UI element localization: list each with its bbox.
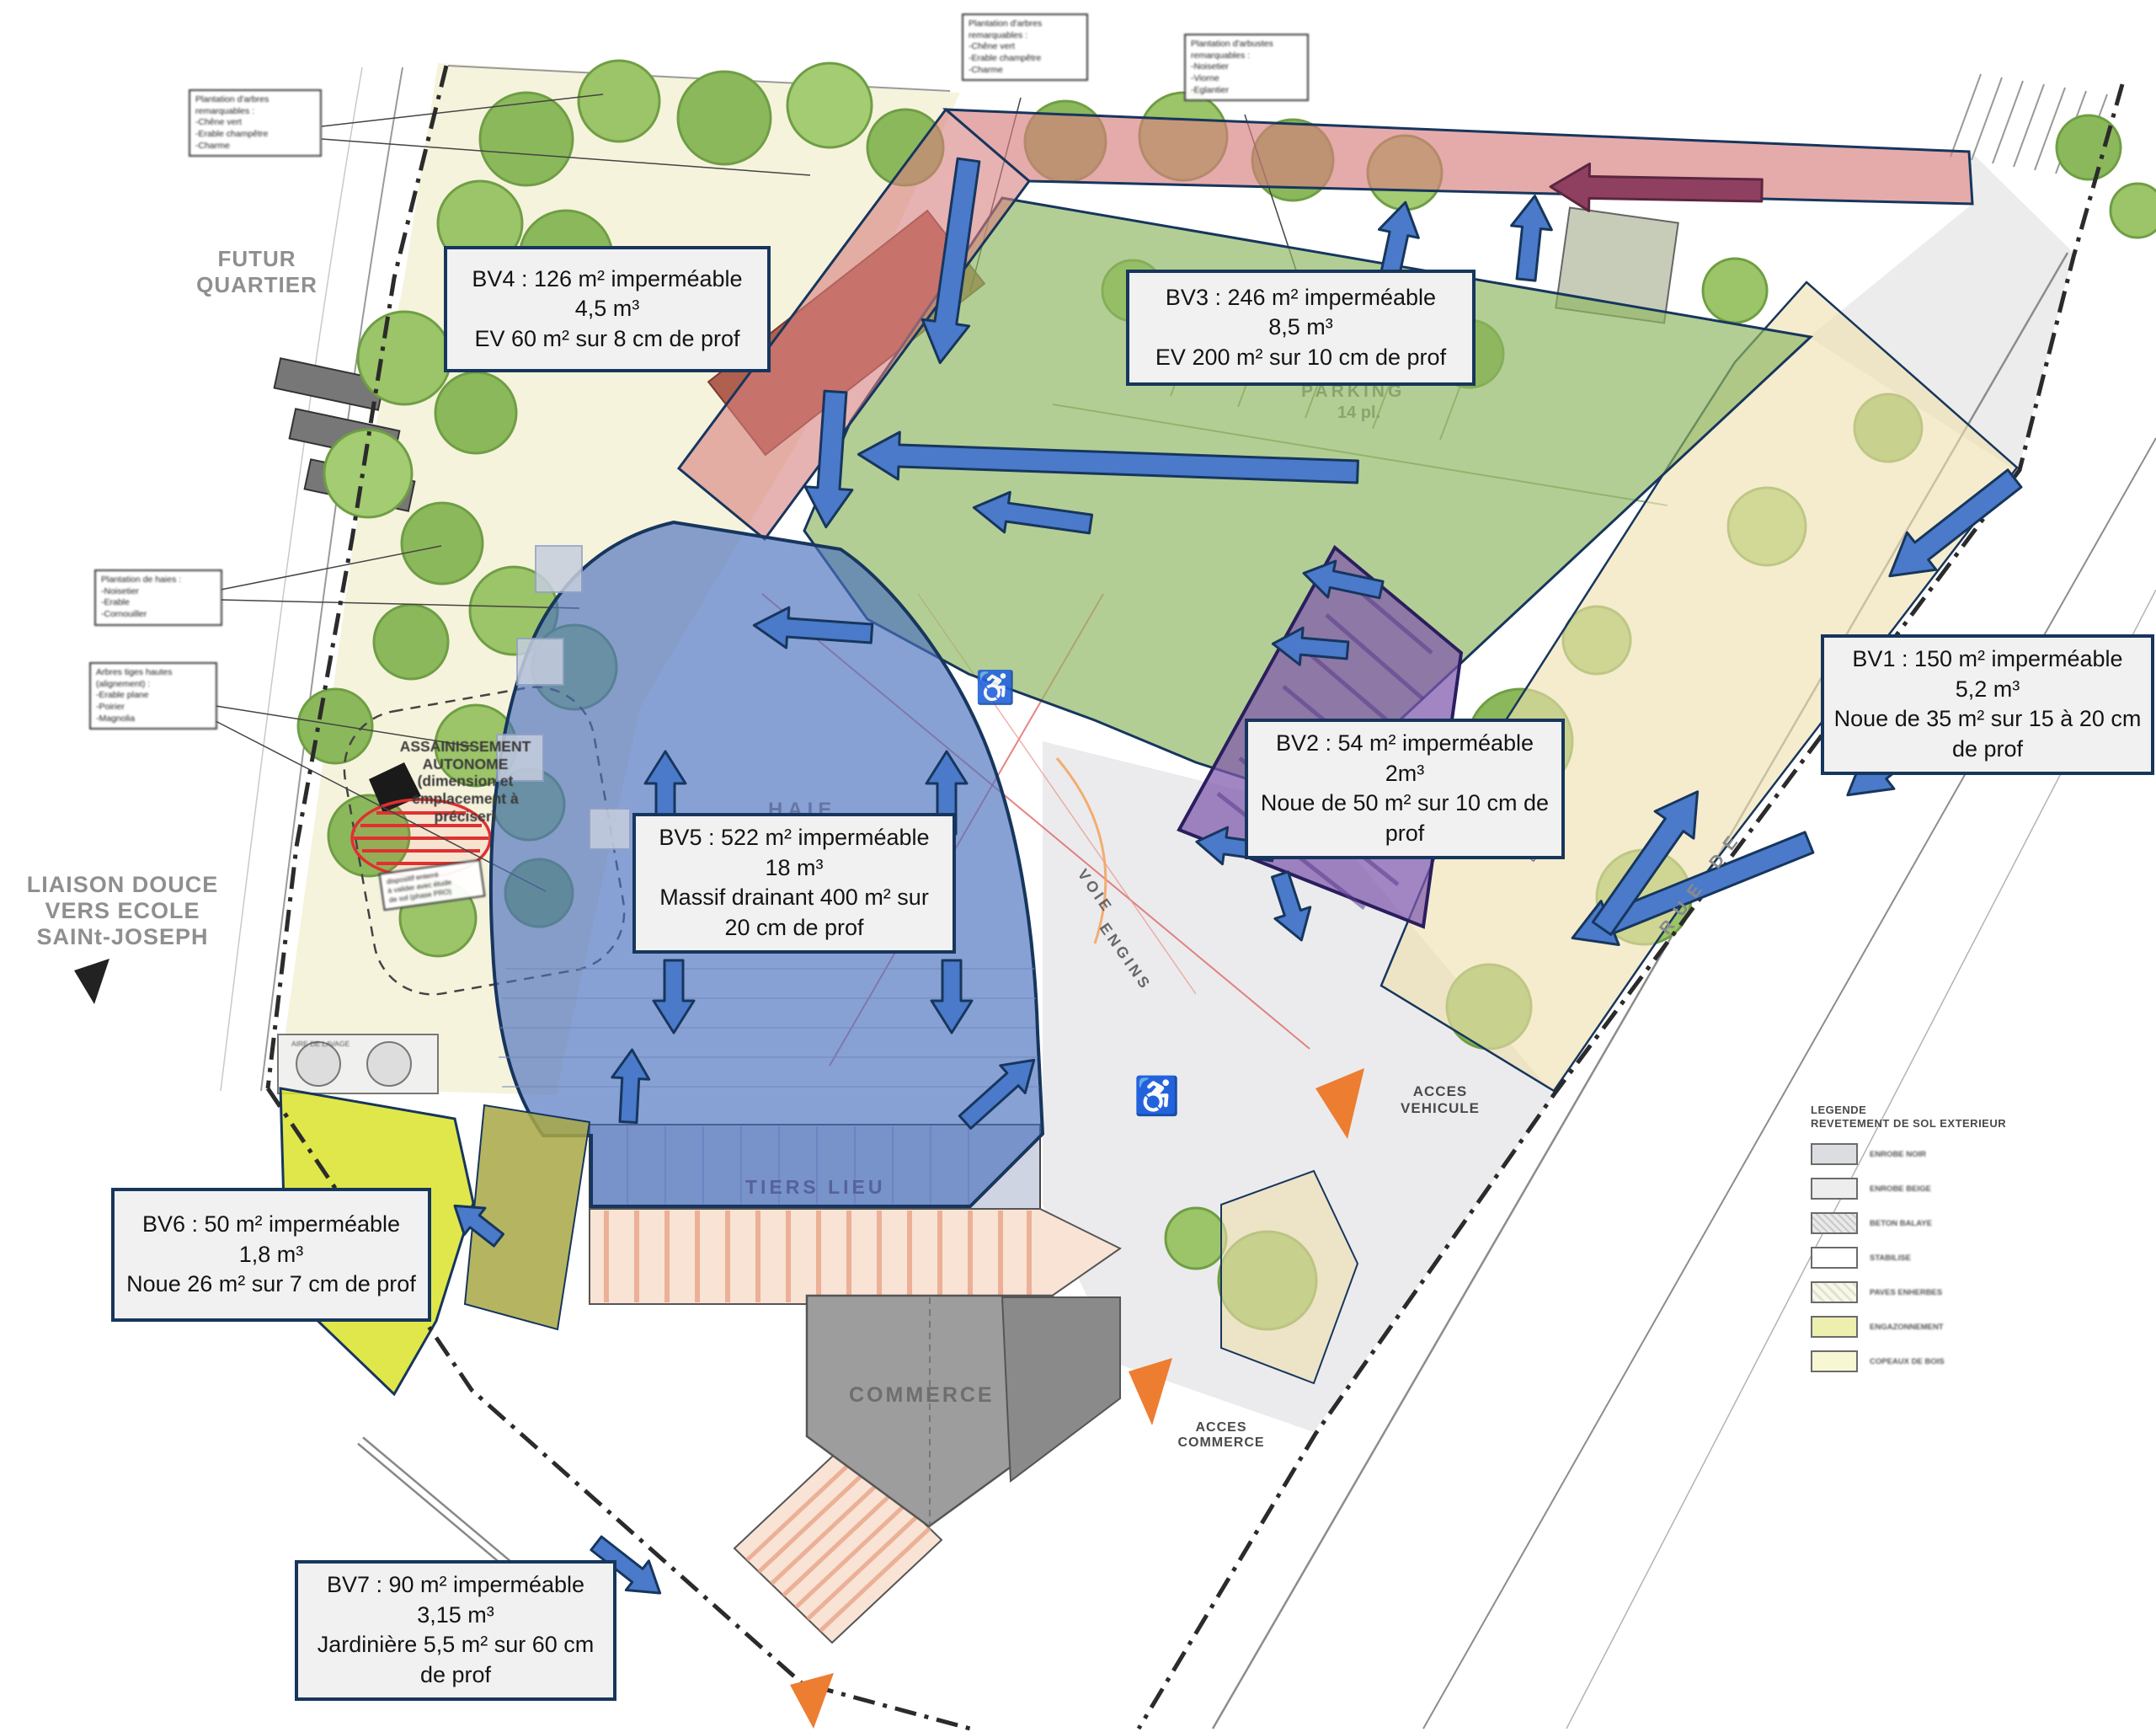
legend-title: LEGENDE REVETEMENT DE SOL EXTERIEUR — [1811, 1104, 2089, 1131]
bv4-annotation-box: BV4 : 126 m² imperméable 4,5 m³ EV 60 m²… — [444, 246, 771, 372]
acces-commerce-label: ACCES COMMERCE — [1166, 1420, 1276, 1451]
legend-swatch-copeaux-de-bois — [1811, 1350, 1858, 1372]
bv1-annotation-box: BV1 : 150 m² imperméable 5,2 m³ Noue de … — [1821, 634, 2154, 775]
legend-row: PAVES ENHERBES — [1811, 1281, 2089, 1304]
bv1-line-3: Noue de 35 m² sur 15 à 20 cm de prof — [1833, 704, 2143, 764]
bv5-line-3: Massif drainant 400 m² sur 20 cm de prof — [644, 883, 944, 943]
callout-arbres-tiges: Arbres tiges hautes (alignement) : -Erab… — [89, 662, 217, 730]
bv7-line-3: Jardinière 5,5 m² sur 60 cm de prof — [307, 1630, 605, 1690]
acces-vehicule-label: ACCES VEHICULE — [1385, 1083, 1495, 1117]
assainissement-label: ASSAINISSEMENT AUTONOME (dimension et em… — [383, 738, 547, 825]
legend-row: ENGAZONNEMENT — [1811, 1316, 2089, 1339]
legend-swatch-paves-enherbes — [1811, 1281, 1858, 1303]
legend-swatch-engazonnement — [1811, 1316, 1858, 1338]
legend-swatch-enrobe-beige — [1811, 1178, 1858, 1200]
parking-places-label: 14 pl. — [1337, 404, 1380, 423]
legend-label: STABILISE — [1870, 1254, 1911, 1263]
bv3-line-1: BV3 : 246 m² imperméable — [1138, 283, 1464, 313]
legend-swatch-beton-balaye — [1811, 1212, 1858, 1234]
legend-label: COPEAUX DE BOIS — [1870, 1357, 1945, 1366]
aire-lavage-label: AIRE DE LAVAGE — [291, 1040, 350, 1048]
wheelchair-icon: ♿ — [975, 672, 1015, 704]
bv2-line-2: 2m³ — [1257, 759, 1553, 789]
bv7-line-2: 3,15 m³ — [307, 1601, 605, 1631]
callout-arbres-remarquables-1: Plantation d'arbres remarquables : -Chên… — [189, 89, 322, 157]
bv3-line-2: 8,5 m³ — [1138, 313, 1464, 343]
callout-arbres-remarquables-2: Plantation d'arbres remarquables : -Chên… — [962, 13, 1088, 81]
legend-row: BETON BALAYE — [1811, 1212, 2089, 1235]
bv6-line-2: 1,8 m³ — [123, 1240, 419, 1270]
legend-row: STABILISE — [1811, 1247, 2089, 1270]
zone-bv4-red-strip — [946, 110, 1972, 204]
commerce-label: COMMERCE — [849, 1383, 995, 1408]
bv7-line-1: BV7 : 90 m² imperméable — [307, 1570, 605, 1601]
legend-label: BETON BALAYE — [1870, 1219, 1932, 1228]
legend-row: COPEAUX DE BOIS — [1811, 1350, 2089, 1373]
bv4-line-2: 4,5 m³ — [456, 294, 759, 324]
legend-label: PAVES ENHERBES — [1870, 1288, 1942, 1297]
bv6-line-1: BV6 : 50 m² imperméable — [123, 1210, 419, 1240]
bv7-annotation-box: BV7 : 90 m² imperméable 3,15 m³ Jardiniè… — [295, 1560, 616, 1701]
bv2-line-1: BV2 : 54 m² imperméable — [1257, 729, 1553, 759]
bv3-line-3: EV 200 m² sur 10 cm de prof — [1138, 343, 1464, 373]
bv3-annotation-box: BV3 : 246 m² imperméable 8,5 m³ EV 200 m… — [1126, 270, 1476, 386]
legend-label: ENROBE NOIR — [1870, 1150, 1926, 1159]
acces-sud-triangle — [790, 1673, 834, 1729]
liaison-douce-label: LIAISON DOUCE VERS ECOLE SAINt-JOSEPH — [24, 872, 221, 950]
futur-quartier-label: FUTUR QUARTIER — [173, 246, 341, 298]
bv4-line-3: EV 60 m² sur 8 cm de prof — [456, 324, 759, 355]
legend-row: ENROBE NOIR — [1811, 1143, 2089, 1166]
bv5-line-2: 18 m³ — [644, 853, 944, 884]
direction-triangle — [74, 959, 109, 1004]
bv1-line-1: BV1 : 150 m² imperméable — [1833, 644, 2143, 675]
legend: LEGENDE REVETEMENT DE SOL EXTERIEUR ENRO… — [1811, 1104, 2089, 1373]
bv2-annotation-box: BV2 : 54 m² imperméable 2m³ Noue de 50 m… — [1245, 719, 1565, 859]
tiers-lieu-label: TIERS LIEU — [745, 1176, 886, 1199]
legend-row: ENROBE BEIGE — [1811, 1178, 2089, 1200]
bv2-line-3: Noue de 50 m² sur 10 cm de prof — [1257, 788, 1553, 848]
legend-swatch-enrobe-noir — [1811, 1143, 1858, 1165]
wheelchair-icon: ♿ — [1134, 1078, 1180, 1115]
bv5-annotation-box: BV5 : 522 m² imperméable 18 m³ Massif dr… — [632, 813, 956, 954]
legend-swatch-stabilise — [1811, 1247, 1858, 1269]
callout-plantation-haies: Plantation de haies : -Noisetier -Erable… — [94, 569, 222, 626]
bv6-line-3: Noue 26 m² sur 7 cm de prof — [123, 1270, 419, 1300]
bv6-annotation-box: BV6 : 50 m² imperméable 1,8 m³ Noue 26 m… — [111, 1188, 431, 1322]
legend-label: ENROBE BEIGE — [1870, 1184, 1931, 1194]
bv5-line-1: BV5 : 522 m² imperméable — [644, 823, 944, 853]
bv4-line-1: BV4 : 126 m² imperméable — [456, 265, 759, 295]
bv1-line-2: 5,2 m³ — [1833, 675, 2143, 705]
site-plan-canvas: FUTUR QUARTIER LIAISON DOUCE VERS ECOLE … — [0, 0, 2156, 1732]
callout-arbustes-remarquables: Plantation d'arbustes remarquables : -No… — [1184, 34, 1309, 101]
legend-label: ENGAZONNEMENT — [1870, 1323, 1944, 1332]
